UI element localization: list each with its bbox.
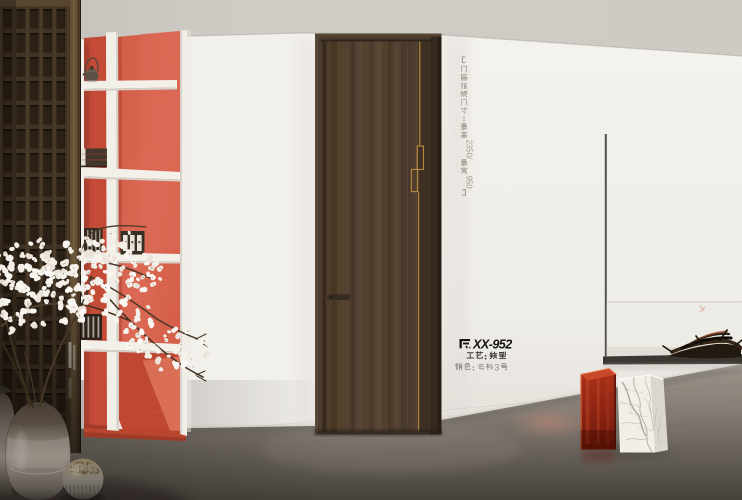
svg-text:XX-952: XX-952 xyxy=(472,337,512,351)
svg-text:950: 950 xyxy=(465,176,474,190)
svg-text:2350/: 2350/ xyxy=(465,140,474,160)
svg-text:3: 3 xyxy=(494,363,499,373)
